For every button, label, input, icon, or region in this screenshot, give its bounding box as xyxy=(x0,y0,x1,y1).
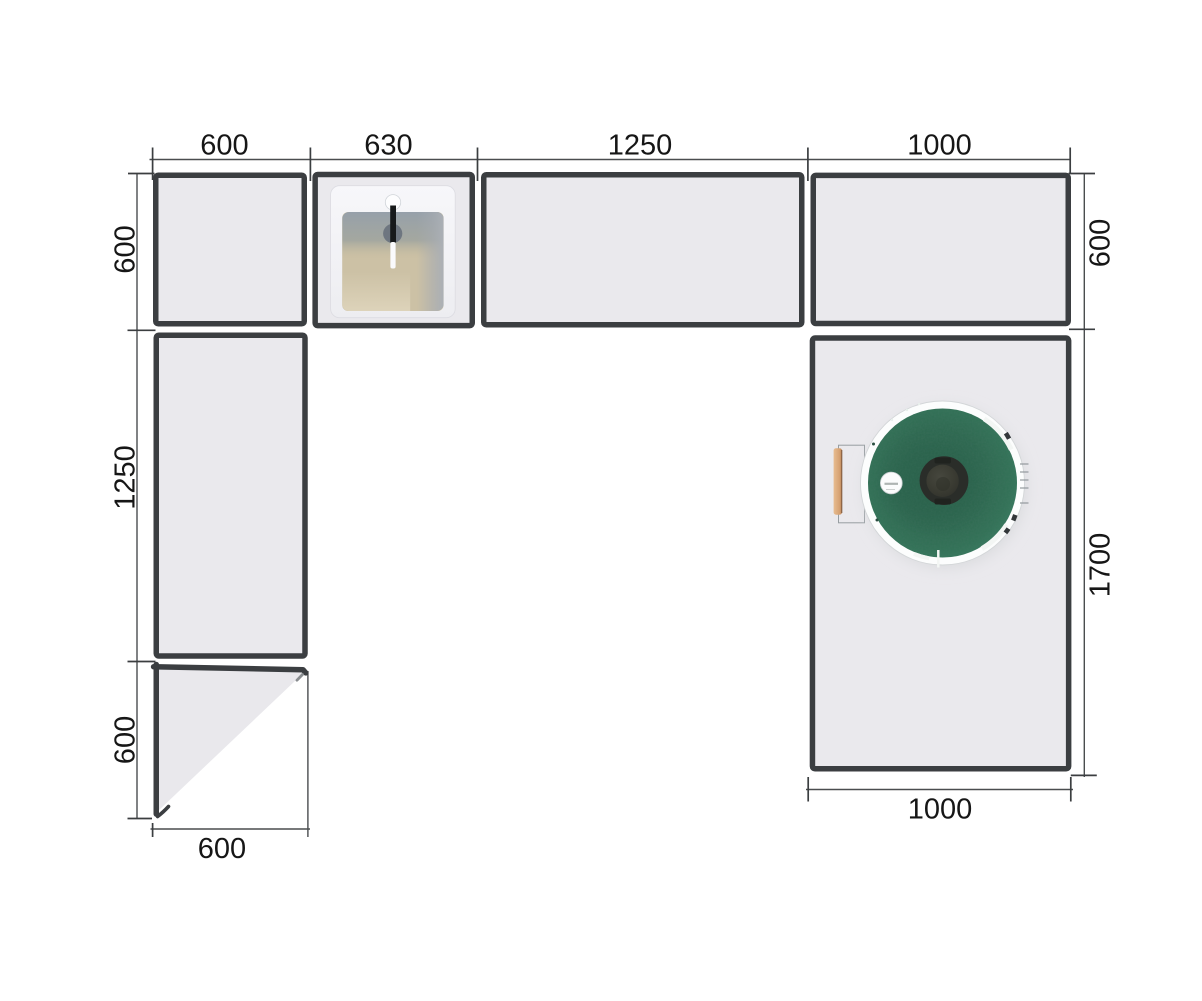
svg-text:600: 600 xyxy=(200,130,248,162)
svg-text:600: 600 xyxy=(110,716,142,764)
svg-text:1000: 1000 xyxy=(908,793,973,825)
svg-text:1250: 1250 xyxy=(608,130,673,162)
svg-text:600: 600 xyxy=(110,225,142,273)
svg-text:1250: 1250 xyxy=(110,445,142,510)
svg-text:1700: 1700 xyxy=(1085,533,1117,598)
svg-text:630: 630 xyxy=(364,130,412,162)
svg-text:1000: 1000 xyxy=(907,130,972,162)
svg-text:600: 600 xyxy=(1085,219,1117,267)
svg-text:600: 600 xyxy=(198,833,246,865)
